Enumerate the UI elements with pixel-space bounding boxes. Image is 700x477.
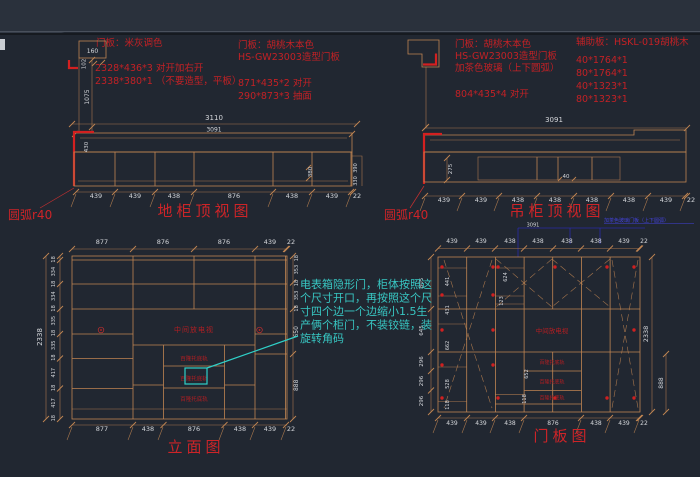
note-mid-line1: 门板：胡桃木本色 [238,39,315,51]
dim: 876 [547,420,559,427]
dim: 160 [87,48,99,55]
dim: 22 [287,238,295,246]
view-title-elevation: 立面图 [167,438,224,456]
dim: 430 [84,141,90,152]
note-aux-item: 40*1764*1 [576,55,628,66]
dim: 417 [51,398,57,408]
note-mid-line4: 290*873*3 抽面 [238,90,312,102]
dim: 380 [308,166,314,177]
note-mid-line2: HS-GW23003造型门板 [238,51,340,63]
note-aux-item: 80*1323*1 [576,94,628,105]
drawer-label: 百隆托底轨 [180,355,208,363]
dim: 439 [475,196,487,204]
dim: 3091 [206,127,221,134]
dim: 438 [504,420,516,427]
dim: 439 [475,420,487,427]
note-right-line3: 加茶色玻璃（上下圆弧） [455,62,560,74]
dim: 438 [590,420,602,427]
dim: 18 [51,354,57,360]
dim: 438 [142,425,154,433]
dim: 528 [445,379,451,389]
dim: 296 [419,395,425,406]
dim: 275 [448,163,454,174]
dim: 22 [640,238,648,245]
dim: 876 [157,238,169,246]
dim: 417 [51,368,57,378]
note-aux-item: 40*1323*1 [576,81,628,92]
callout-line: 个尺寸开口，再按照这个尺 [300,291,432,305]
dim: 877 [96,238,108,246]
dim: 18 [51,330,57,336]
dim: 18 [51,415,57,421]
dim: 888 [658,377,665,389]
view-title-wall-top: 吊柜顶视图 [509,202,604,220]
dim: 22 [353,192,361,200]
tv-area-label: 中间放电视 [536,326,569,335]
dim: 123 [499,296,505,306]
note-right-line1: 门板：胡桃木本色 [455,38,532,50]
dim: 876 [228,192,240,200]
drawer-label: 百隆托底轨 [180,395,208,403]
dim: 18 [51,281,57,287]
dim: 441 [445,277,451,287]
dim: 438 [504,238,516,245]
drawer-label: 百隆托底轨 [539,359,564,366]
arc-label: 圆弧r40 [8,208,52,222]
dim: 335 [51,341,57,351]
dim: 439 [618,420,630,427]
cad-canvas[interactable]: 门板：米灰调色 2328*436*3 对开加右开 2338*380*1 （不要造… [0,0,700,477]
dim: 296 [419,375,425,386]
dim: 2338 [642,326,650,343]
dim: 334 [51,291,57,301]
tv-area-label: 中间放电视 [174,325,214,334]
drawer-label: 百隆托底轨 [539,379,564,386]
dim: 438 [561,238,573,245]
dim: 438 [168,192,180,200]
dim: 1075 [84,89,91,104]
dim: 439 [90,192,102,200]
dim: 439 [475,238,487,245]
dim: 876 [218,238,230,246]
door-bottom-dims: 439 439 438 876 438 439 22 [446,420,648,427]
dim: 888 [293,379,300,391]
dim: 18 [51,305,57,311]
arc-label: 圆弧r40 [384,208,428,222]
note-mid-line3: 871*435*2 对开 [238,77,312,89]
dim: 438 [532,238,544,245]
note-left-line2: 2328*436*3 对开加右开 [95,62,204,74]
dim: 22 [640,420,648,427]
dim: 438 [623,196,635,204]
dim: 390 [353,163,359,173]
dim: 330 [353,176,359,186]
dim: 3091 [527,223,540,229]
dim: 439 [264,238,276,246]
note-right-line4: 804*435*4 对开 [455,88,529,100]
dim: 439 [264,425,276,433]
dim: 650 [293,326,300,338]
dim: 652 [524,369,530,379]
dim: 3091 [545,116,563,124]
dim: 439 [660,196,672,204]
dim: 2338 [36,328,44,346]
callout-line: 寸四个边一个边缩小1.5生 [300,304,428,318]
dim: 662 [445,341,451,351]
dim: 431 [445,305,451,315]
drawer-label: 百隆托底轨 [539,395,564,402]
note-aux-item: 80*1764*1 [576,68,628,79]
dim: 876 [188,425,200,433]
dim: 877 [96,425,108,433]
note-left-line3: 2338*380*1 （不要造型，平板） [95,75,241,87]
left-edge-marker [0,39,5,50]
dim: 18 [294,255,300,261]
dim: 439 [129,192,141,200]
watermark-text: 加茶色玻璃门板（上下圆弧） [604,217,669,224]
dim: 102 [82,59,88,70]
dim: 624 [503,272,509,282]
note-aux-title: 辅助板：HSKL-019胡桃木 [576,36,689,48]
dim: 439 [618,238,630,245]
dim: 438 [286,192,298,200]
drawing-area[interactable]: 门板：米灰调色 2328*436*3 对开加右开 2338*380*1 （不要造… [0,0,700,477]
note-right-line2: HS-GW23003造型门板 [455,50,557,62]
dim: 18 [51,385,57,391]
dim: 439 [326,192,338,200]
callout-line: 产俩个柜门，不装铰链，装 [300,318,432,332]
dim: 18 [51,256,57,262]
view-title-base-top: 地柜顶视图 [157,202,252,220]
dim: 439 [438,196,450,204]
dim: 439 [446,420,458,427]
callout-line: 旋转角码 [300,331,344,345]
dim: 22 [687,196,695,204]
dim: 296 [419,356,425,367]
dim: 40 [563,174,570,180]
view-title-door-panel: 门板图 [533,427,590,445]
callout-line: 电表箱隐形门，柜体按照这 [300,277,432,291]
dim: 438 [590,238,602,245]
dim: 3110 [205,114,223,122]
dim: 438 [234,425,246,433]
dim: 334 [51,267,57,277]
dim: 118 [522,394,528,404]
dim: 439 [446,238,458,245]
dim: 335 [51,316,57,326]
dim: 118 [445,400,451,410]
dim: 22 [287,425,295,433]
dim: 353 [294,265,300,275]
